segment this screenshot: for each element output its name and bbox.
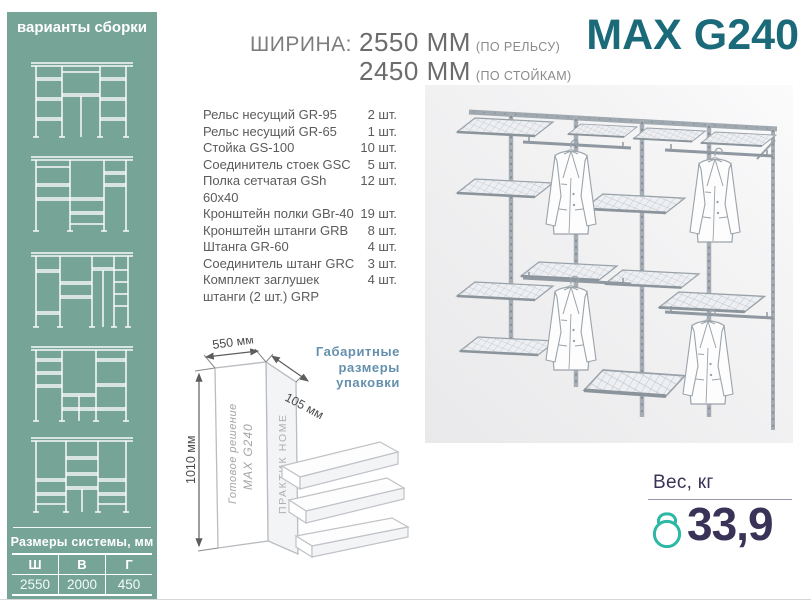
part-qty: 4 шт.	[368, 272, 397, 289]
part-name: Стойка GS-100	[203, 140, 294, 157]
sidebar-title: варианты сборки	[7, 19, 157, 36]
part-name: Кронштейн полки GBr-40	[203, 206, 354, 223]
flat-boxes	[282, 442, 408, 557]
part-row: Кронштейн полки GBr-4019 шт.	[203, 206, 397, 223]
assembly-variants-sidebar: варианты сборки	[7, 12, 157, 600]
wardrobe-system-illustration	[423, 82, 795, 452]
wardrobe-drawing	[423, 82, 795, 447]
part-row: Штанга GR-604 шт.	[203, 239, 397, 256]
part-name: Рельс несущий GR-95	[203, 107, 337, 124]
part-qty: 3 шт.	[368, 256, 397, 273]
box-text-line2: MAX G240	[241, 423, 255, 490]
part-row: Полка сетчатая GSh 60x4012 шт.	[203, 173, 397, 206]
part-qty: 1 шт.	[368, 124, 397, 141]
assembly-variant-5-diagram	[26, 433, 138, 519]
part-row: Соединитель штанг GRC3 шт.	[203, 256, 397, 273]
part-name: Соединитель стоек GSC	[203, 157, 351, 174]
box-text-line1: Готовое решение	[227, 403, 239, 504]
part-row: Стойка GS-10010 шт.	[203, 140, 397, 157]
part-qty: 2 шт.	[368, 107, 397, 124]
part-name: Кронштейн штанги GRB	[203, 223, 348, 240]
part-row: Соединитель стоек GSC5 шт.	[203, 157, 397, 174]
part-qty: 8 шт.	[368, 223, 397, 240]
weight-label: Вес, кг	[653, 472, 714, 494]
part-name: Полка сетчатая GSh 60x40	[203, 173, 355, 206]
part-qty: 19 шт.	[360, 206, 397, 223]
col-header-width: Ш	[12, 555, 58, 574]
part-name: Комплект заглушек штанги (2 шт.) GRP	[203, 272, 355, 305]
col-header-depth: Г	[105, 555, 152, 574]
value-width: 2550	[12, 575, 58, 594]
part-qty: 5 шт.	[368, 157, 397, 174]
table-value-row: 2550 2000 450	[12, 575, 152, 594]
part-name: Соединитель штанг GRC	[203, 256, 354, 273]
wardrobe-wireframe-icon	[26, 342, 138, 428]
wardrobe-wireframe-icon	[26, 152, 138, 238]
value-height: 2000	[58, 575, 105, 594]
assembly-variant-1-diagram	[26, 58, 138, 144]
part-row: Комплект заглушек штанги (2 шт.) GRP4 шт…	[203, 272, 397, 305]
assembly-variant-4-diagram	[26, 342, 138, 428]
catalog-page: варианты сборки	[0, 0, 811, 600]
product-name: MAX G240	[563, 14, 799, 57]
parts-list: Рельс несущий GR-952 шт. Рельс несущий G…	[203, 107, 397, 305]
width-label: ШИРИНА:	[248, 34, 352, 55]
width-rail-note: (ПО РЕЛЬСУ)	[476, 41, 560, 54]
dim-height-label: 1010 мм	[184, 436, 198, 484]
wardrobe-wireframe-icon	[26, 433, 138, 519]
width-posts-note: (ПО СТОЙКАМ)	[476, 70, 572, 83]
wardrobe-wireframe-icon	[26, 248, 138, 334]
assembly-variant-2-diagram	[26, 152, 138, 238]
table-header-row: Ш В Г	[12, 555, 152, 575]
col-header-height: В	[58, 555, 105, 574]
width-spec-row-posts: 2450 ММ (ПО СТОЙКАМ)	[248, 58, 572, 84]
width-spec-row-rail: ШИРИНА: 2550 ММ (ПО РЕЛЬСУ)	[248, 29, 572, 55]
part-row: Кронштейн штанги GRB8 шт.	[203, 223, 397, 240]
part-name: Рельс несущий GR-65	[203, 124, 337, 141]
part-name: Штанга GR-60	[203, 239, 289, 256]
sidebar-divider	[13, 527, 151, 528]
assembly-variant-3-diagram	[26, 248, 138, 334]
width-rail-value: 2550 ММ	[359, 29, 471, 55]
system-dimensions-table: Ш В Г 2550 2000 450	[12, 553, 152, 596]
box-side-text: ПРАКТИК HOME	[277, 413, 289, 514]
package-dimensions-label: Габаритные размеры упаковки	[298, 344, 400, 391]
part-row: Рельс несущий GR-651 шт.	[203, 124, 397, 141]
part-qty: 12 шт.	[360, 173, 397, 190]
part-qty: 10 шт.	[360, 140, 397, 157]
wardrobe-wireframe-icon	[26, 58, 138, 144]
value-depth: 450	[105, 575, 152, 594]
part-row: Рельс несущий GR-952 шт.	[203, 107, 397, 124]
part-qty: 4 шт.	[368, 239, 397, 256]
kettlebell-icon	[649, 507, 685, 554]
system-dimensions-title: Размеры системы, мм	[7, 535, 157, 549]
dim-width-label: 550 мм	[211, 338, 254, 352]
weight-value: 33,9	[687, 501, 773, 547]
width-spec: ШИРИНА: 2550 ММ (ПО РЕЛЬСУ) 2450 ММ (ПО …	[248, 29, 572, 87]
width-posts-value: 2450 ММ	[359, 58, 471, 84]
